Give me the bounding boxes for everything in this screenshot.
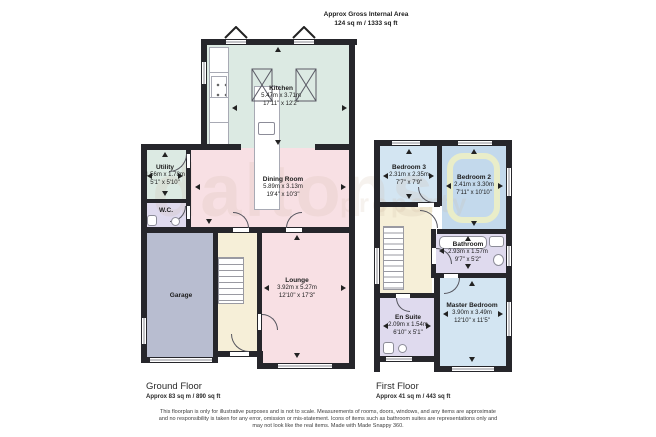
measure-arrow-icon <box>383 173 388 179</box>
ground-floor-title: Ground Floor <box>146 381 202 392</box>
wall <box>141 144 207 150</box>
measure-arrow-icon <box>206 219 212 224</box>
window <box>386 357 412 361</box>
measure-arrow-icon <box>439 248 444 254</box>
measure-arrow-icon <box>162 191 168 196</box>
door-opening <box>187 154 190 168</box>
window <box>392 141 420 145</box>
measure-arrow-icon <box>294 353 300 358</box>
measure-arrow-icon <box>264 285 269 291</box>
door-opening <box>258 314 261 330</box>
master-bedroom-label: Master Bedroom 3.90m x 3.49m 12'10" x 11… <box>446 302 497 326</box>
wall <box>141 199 191 203</box>
door-opening <box>233 228 249 232</box>
measure-arrow-icon <box>469 357 475 362</box>
measure-arrow-icon <box>162 152 168 157</box>
measure-arrow-icon <box>294 235 300 240</box>
first-floor-title: First Floor <box>376 381 419 392</box>
window <box>507 168 511 196</box>
measure-arrow-icon <box>275 140 281 145</box>
measure-arrow-icon <box>471 221 477 226</box>
window <box>294 40 314 44</box>
wall <box>201 39 357 45</box>
wall <box>213 233 218 357</box>
door-opening <box>438 210 442 226</box>
dining-room-label: Dining Room 5.89m x 3.13m 19'4" x 10'3" <box>263 176 303 200</box>
first-floor-area: Approx 41 sq m / 443 sq ft <box>376 394 450 400</box>
door-opening <box>418 203 434 207</box>
garage-label: Garage <box>170 292 192 300</box>
wall <box>437 140 442 206</box>
stairs-ground <box>218 257 244 304</box>
window <box>452 367 494 371</box>
front-door-opening <box>230 352 249 356</box>
measure-arrow-icon <box>498 183 503 189</box>
toilet-icon <box>147 215 157 226</box>
gross-area-title: Approx Gross Internal Area <box>324 10 409 19</box>
measure-arrow-icon <box>275 47 281 52</box>
measure-arrow-icon <box>429 173 434 179</box>
wall <box>431 273 510 278</box>
wall <box>201 39 207 150</box>
window <box>458 141 492 145</box>
measure-arrow-icon <box>498 311 503 317</box>
lounge-label: Lounge 3.92m x 5.27m 12'10" x 17'3" <box>277 277 317 301</box>
stairs-first <box>383 226 404 290</box>
measure-arrow-icon <box>195 184 200 190</box>
roof-apex-icon <box>292 26 316 39</box>
window <box>507 302 511 336</box>
window <box>226 40 246 44</box>
wall <box>349 39 355 369</box>
sink-icon <box>171 217 180 226</box>
wall <box>434 273 440 372</box>
bedroom3-label: Bedroom 3 2.31m x 2.35m 7'7" x 7'9" <box>389 164 429 188</box>
toilet-icon <box>383 342 394 354</box>
roof-apex-icon <box>224 26 248 39</box>
door-opening <box>187 206 190 219</box>
measure-arrow-icon <box>341 184 346 190</box>
measure-arrow-icon <box>469 281 475 286</box>
window <box>278 364 332 368</box>
ground-floor-area: Approx 83 sq m / 890 sq ft <box>146 394 220 400</box>
wall <box>315 144 355 150</box>
measure-arrow-icon <box>406 149 412 154</box>
wall <box>201 144 241 150</box>
kitchen-label: Kitchen 5.47m x 3.71m 17'11" x 12'2" <box>261 85 301 109</box>
measure-arrow-icon <box>341 285 346 291</box>
floorplan-page: Approx Gross Internal Area 124 sq m / 13… <box>0 0 656 437</box>
bathroom-label: Bathroom 2.93m x 1.57m 9'7" x 5'2" <box>448 241 488 265</box>
window <box>507 246 511 266</box>
sink-icon <box>398 344 407 353</box>
bedroom2-label: Bedroom 2 2.41m x 3.30m 7'11" x 10'10" <box>454 174 494 198</box>
wall <box>437 229 510 234</box>
utility-label: Utility 1.56m x 1.78m 5'1" x 5'10" <box>145 164 185 188</box>
wc-label: W.C. <box>159 207 173 215</box>
gross-area-value: 124 sq m / 1333 sq ft <box>324 19 409 28</box>
measure-arrow-icon <box>446 183 451 189</box>
window <box>142 318 146 344</box>
garage-door <box>150 358 212 362</box>
sink-icon <box>258 122 275 135</box>
sink-icon <box>493 254 504 266</box>
gross-internal-area: Approx Gross Internal Area 124 sq m / 13… <box>324 10 409 28</box>
window <box>375 248 379 284</box>
measure-arrow-icon <box>471 149 477 154</box>
measure-arrow-icon <box>406 194 412 199</box>
measure-arrow-icon <box>232 105 237 111</box>
ensuite-label: En Suite 2.09m x 1.54m 6'10" x 5'1" <box>388 314 428 338</box>
disclaimer-line-3: may not look like the real items. Made w… <box>0 423 656 430</box>
wall <box>257 233 262 351</box>
door-opening <box>286 228 302 232</box>
window <box>202 62 206 84</box>
hob-icon <box>211 76 227 98</box>
toilet-icon <box>489 236 504 247</box>
measure-arrow-icon <box>342 105 347 111</box>
